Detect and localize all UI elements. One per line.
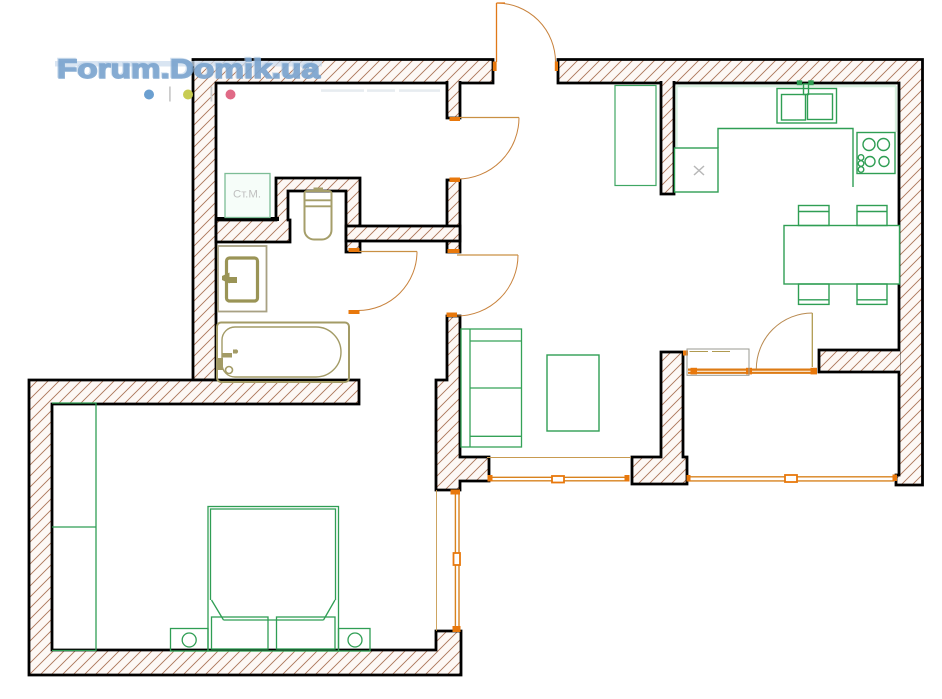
svg-text:Ст.М.: Ст.М. [233,189,261,201]
svg-text:Forum.Domik.ua: Forum.Domik.ua [57,54,320,84]
